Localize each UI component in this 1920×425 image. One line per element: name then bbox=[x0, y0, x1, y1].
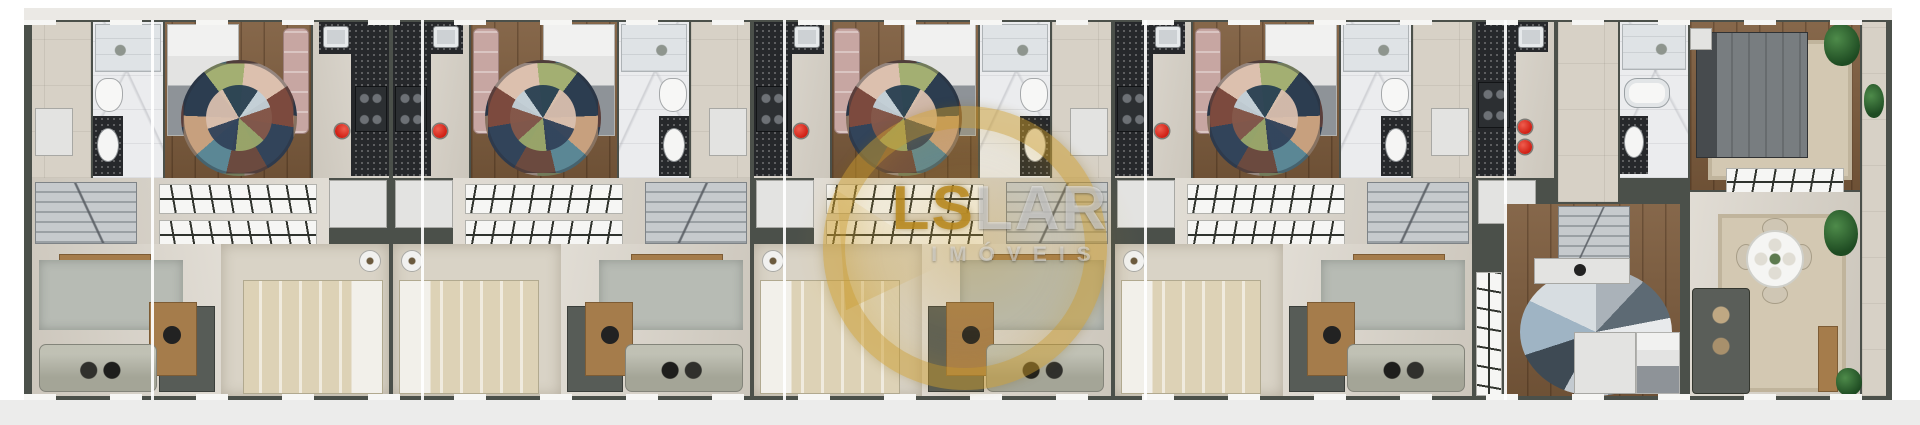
round-rug bbox=[181, 60, 297, 176]
toilet bbox=[659, 78, 687, 112]
kitchen-cabinet bbox=[329, 180, 387, 228]
end-sofa bbox=[1692, 288, 1750, 394]
red-stool bbox=[1155, 124, 1169, 138]
hall-cabinet bbox=[1070, 108, 1108, 156]
sofa bbox=[39, 344, 157, 392]
floorplan-render-page: LSLAR IMÓVEIS bbox=[0, 0, 1920, 425]
t-vertical-rack bbox=[1476, 272, 1502, 396]
kitchen-sink bbox=[1155, 26, 1181, 48]
stove bbox=[355, 86, 387, 132]
unit-separator-3 bbox=[783, 20, 786, 400]
end-plant-living bbox=[1824, 210, 1858, 256]
staircase bbox=[35, 182, 137, 244]
hall-cabinet bbox=[709, 108, 747, 156]
t-kitchen-sink bbox=[1518, 26, 1544, 48]
unit-separator-5 bbox=[1504, 20, 1507, 400]
red-stool bbox=[433, 124, 447, 138]
shower bbox=[982, 24, 1048, 72]
end-double-bed bbox=[1696, 32, 1808, 158]
bathtub bbox=[1624, 78, 1670, 108]
building-floor-plan bbox=[24, 20, 1892, 400]
pouf bbox=[401, 250, 423, 272]
unit-separator-4 bbox=[1144, 20, 1147, 400]
window-band-bottom bbox=[24, 394, 1892, 400]
shower bbox=[1343, 24, 1409, 72]
bath-sink bbox=[1385, 128, 1407, 162]
closet-rack-1 bbox=[465, 184, 623, 214]
toilet bbox=[95, 78, 123, 112]
dining-table bbox=[1746, 230, 1804, 288]
end-sideboard bbox=[1818, 326, 1838, 392]
pouf bbox=[1123, 250, 1145, 272]
t-desk-lamp bbox=[1574, 264, 1586, 276]
closet-rack-1 bbox=[826, 184, 984, 214]
t-hall-floor bbox=[1558, 22, 1618, 202]
hall-cabinet bbox=[1431, 108, 1469, 156]
kitchen-sink bbox=[433, 26, 459, 48]
balcony-plant bbox=[1864, 84, 1884, 118]
bath-sink bbox=[97, 128, 119, 162]
window-band-top bbox=[24, 20, 1892, 25]
end-unit bbox=[1474, 20, 1888, 400]
red-stool bbox=[794, 124, 808, 138]
end-bath-sink bbox=[1624, 126, 1644, 158]
sofa bbox=[625, 344, 743, 392]
exterior-walkway-top bbox=[24, 8, 1892, 20]
t-red-stool-2 bbox=[1518, 140, 1532, 154]
t-staircase bbox=[1558, 206, 1630, 260]
end-plant-corner bbox=[1836, 368, 1862, 396]
round-rug bbox=[485, 60, 601, 176]
nightstand bbox=[1690, 28, 1712, 50]
unit-separator-1 bbox=[151, 20, 154, 400]
staircase bbox=[1367, 182, 1469, 244]
double-bed bbox=[760, 280, 900, 394]
unit-3 bbox=[752, 20, 1113, 400]
closet-rack-1 bbox=[159, 184, 317, 214]
unit-separator-2 bbox=[421, 20, 424, 400]
red-stool bbox=[335, 124, 349, 138]
hall-cabinet bbox=[35, 108, 73, 156]
kitchen-cabinet bbox=[395, 180, 453, 228]
sofa bbox=[986, 344, 1104, 392]
double-bed bbox=[1121, 280, 1261, 394]
bath-sink bbox=[1024, 128, 1046, 162]
table-tray bbox=[163, 326, 181, 344]
table-tray bbox=[962, 326, 980, 344]
unit-4 bbox=[1113, 20, 1474, 400]
t-red-stool-1 bbox=[1518, 120, 1532, 134]
staircase bbox=[1006, 182, 1108, 244]
staircase bbox=[645, 182, 747, 244]
bath-sink bbox=[663, 128, 685, 162]
double-bed bbox=[243, 280, 383, 394]
unit-2 bbox=[391, 20, 752, 400]
round-rug bbox=[1207, 60, 1323, 176]
exterior-walkway-bottom bbox=[0, 400, 1920, 425]
unit-1 bbox=[30, 20, 391, 400]
shower bbox=[621, 24, 687, 72]
round-rug bbox=[846, 60, 962, 176]
t-chaise bbox=[1636, 332, 1680, 394]
kitchen-sink bbox=[323, 26, 349, 48]
end-plant-bedroom bbox=[1824, 24, 1860, 66]
table-tray bbox=[1323, 326, 1341, 344]
toilet bbox=[1381, 78, 1409, 112]
pouf bbox=[359, 250, 381, 272]
end-balcony bbox=[1862, 22, 1886, 396]
t-ottoman bbox=[1574, 332, 1636, 394]
sofa bbox=[1347, 344, 1465, 392]
double-bed bbox=[399, 280, 539, 394]
pouf bbox=[762, 250, 784, 272]
kitchen-sink bbox=[794, 26, 820, 48]
end-shower bbox=[1622, 24, 1686, 70]
toilet bbox=[1020, 78, 1048, 112]
table-tray bbox=[601, 326, 619, 344]
closet-rack-1 bbox=[1187, 184, 1345, 214]
